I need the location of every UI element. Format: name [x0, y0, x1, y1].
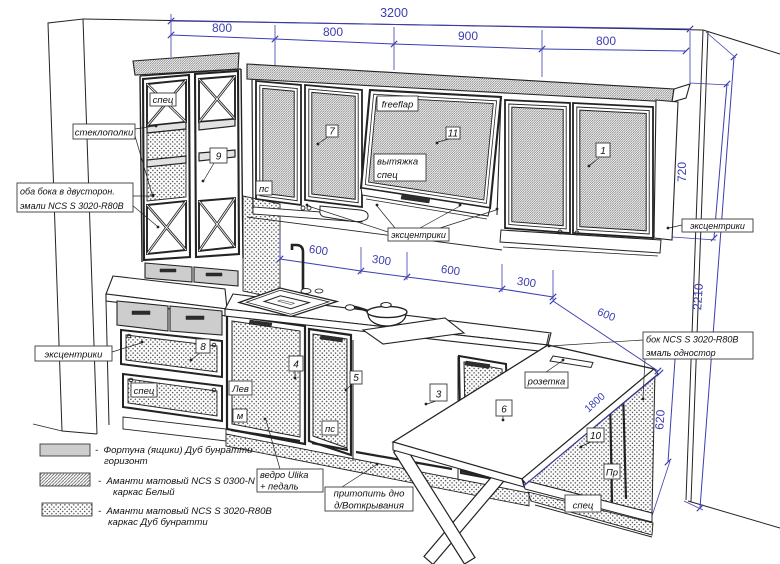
svg-text:11: 11: [448, 128, 458, 139]
svg-text:эмали NCS S 3020-R80B: эмали NCS S 3020-R80B: [20, 201, 124, 211]
svg-text:4: 4: [293, 360, 299, 371]
svg-text:9: 9: [216, 152, 222, 163]
svg-text:1: 1: [600, 146, 606, 157]
svg-text:3200: 3200: [380, 6, 408, 20]
svg-text:2210: 2210: [690, 283, 706, 311]
svg-text:эксцентрики: эксцентрики: [690, 221, 745, 231]
svg-text:пс: пс: [259, 184, 269, 195]
svg-text:- Аманти матовый NCS S 3020-R: - Аманти матовый NCS S 3020-R80B: [98, 506, 272, 517]
svg-text:620: 620: [652, 409, 667, 430]
svg-text:пс: пс: [325, 424, 335, 435]
svg-text:3: 3: [436, 389, 442, 400]
svg-text:8: 8: [200, 342, 206, 353]
svg-text:спец: спец: [377, 170, 398, 181]
svg-text:720: 720: [675, 162, 689, 182]
svg-text:- Аманти матовый NCS S 0300-N: - Аманти матовый NCS S 0300-N: [98, 476, 255, 487]
svg-text:300: 300: [371, 254, 392, 269]
svg-text:эмаль одностор: эмаль одностор: [646, 348, 716, 358]
svg-text:800: 800: [323, 25, 343, 39]
svg-text:притопить дно: притопить дно: [334, 488, 405, 499]
svg-text:эксцентрики: эксцентрики: [391, 230, 446, 240]
svg-text:7: 7: [329, 126, 335, 137]
svg-text:ведро Ulika: ведро Ulika: [260, 470, 308, 480]
svg-text:розетка: розетка: [527, 376, 566, 387]
svg-text:каркас Белый: каркас Белый: [113, 487, 175, 498]
svg-text:спец: спец: [573, 500, 594, 511]
svg-text:- Фортуна (ящики) Дуб бунратт: - Фортуна (ящики) Дуб бунратти: [95, 445, 253, 456]
svg-text:бок NCS S 3020-R80B: бок NCS S 3020-R80B: [646, 335, 738, 345]
svg-text:спец: спец: [134, 386, 155, 397]
svg-text:800: 800: [596, 34, 616, 48]
svg-text:600: 600: [595, 306, 617, 324]
svg-text:спец: спец: [153, 95, 174, 106]
svg-text:freeflap: freeflap: [382, 100, 414, 111]
svg-text:м: м: [237, 411, 244, 422]
svg-text:эксцентрики: эксцентрики: [45, 350, 104, 361]
svg-text:5: 5: [353, 373, 359, 384]
svg-text:300: 300: [516, 276, 537, 291]
svg-text:+ педаль: + педаль: [260, 481, 299, 491]
svg-text:800: 800: [212, 21, 232, 35]
svg-text:6: 6: [501, 404, 507, 415]
svg-text:д/Воткрывания: д/Воткрывания: [334, 500, 404, 511]
svg-text:горизонт: горизонт: [104, 456, 148, 467]
svg-text:каркас Дуб бунратти: каркас Дуб бунратти: [108, 517, 208, 528]
svg-text:стеклополки: стеклополки: [75, 128, 134, 139]
svg-text:900: 900: [458, 29, 478, 43]
svg-text:10: 10: [590, 431, 602, 442]
svg-text:600: 600: [308, 244, 329, 259]
svg-text:Лев: Лев: [231, 384, 249, 395]
svg-text:оба бока в двусторон.: оба бока в двусторон.: [20, 186, 115, 196]
svg-text:Пр: Пр: [606, 468, 618, 479]
svg-text:вытяжка: вытяжка: [377, 157, 418, 168]
svg-text:600: 600: [440, 264, 461, 279]
